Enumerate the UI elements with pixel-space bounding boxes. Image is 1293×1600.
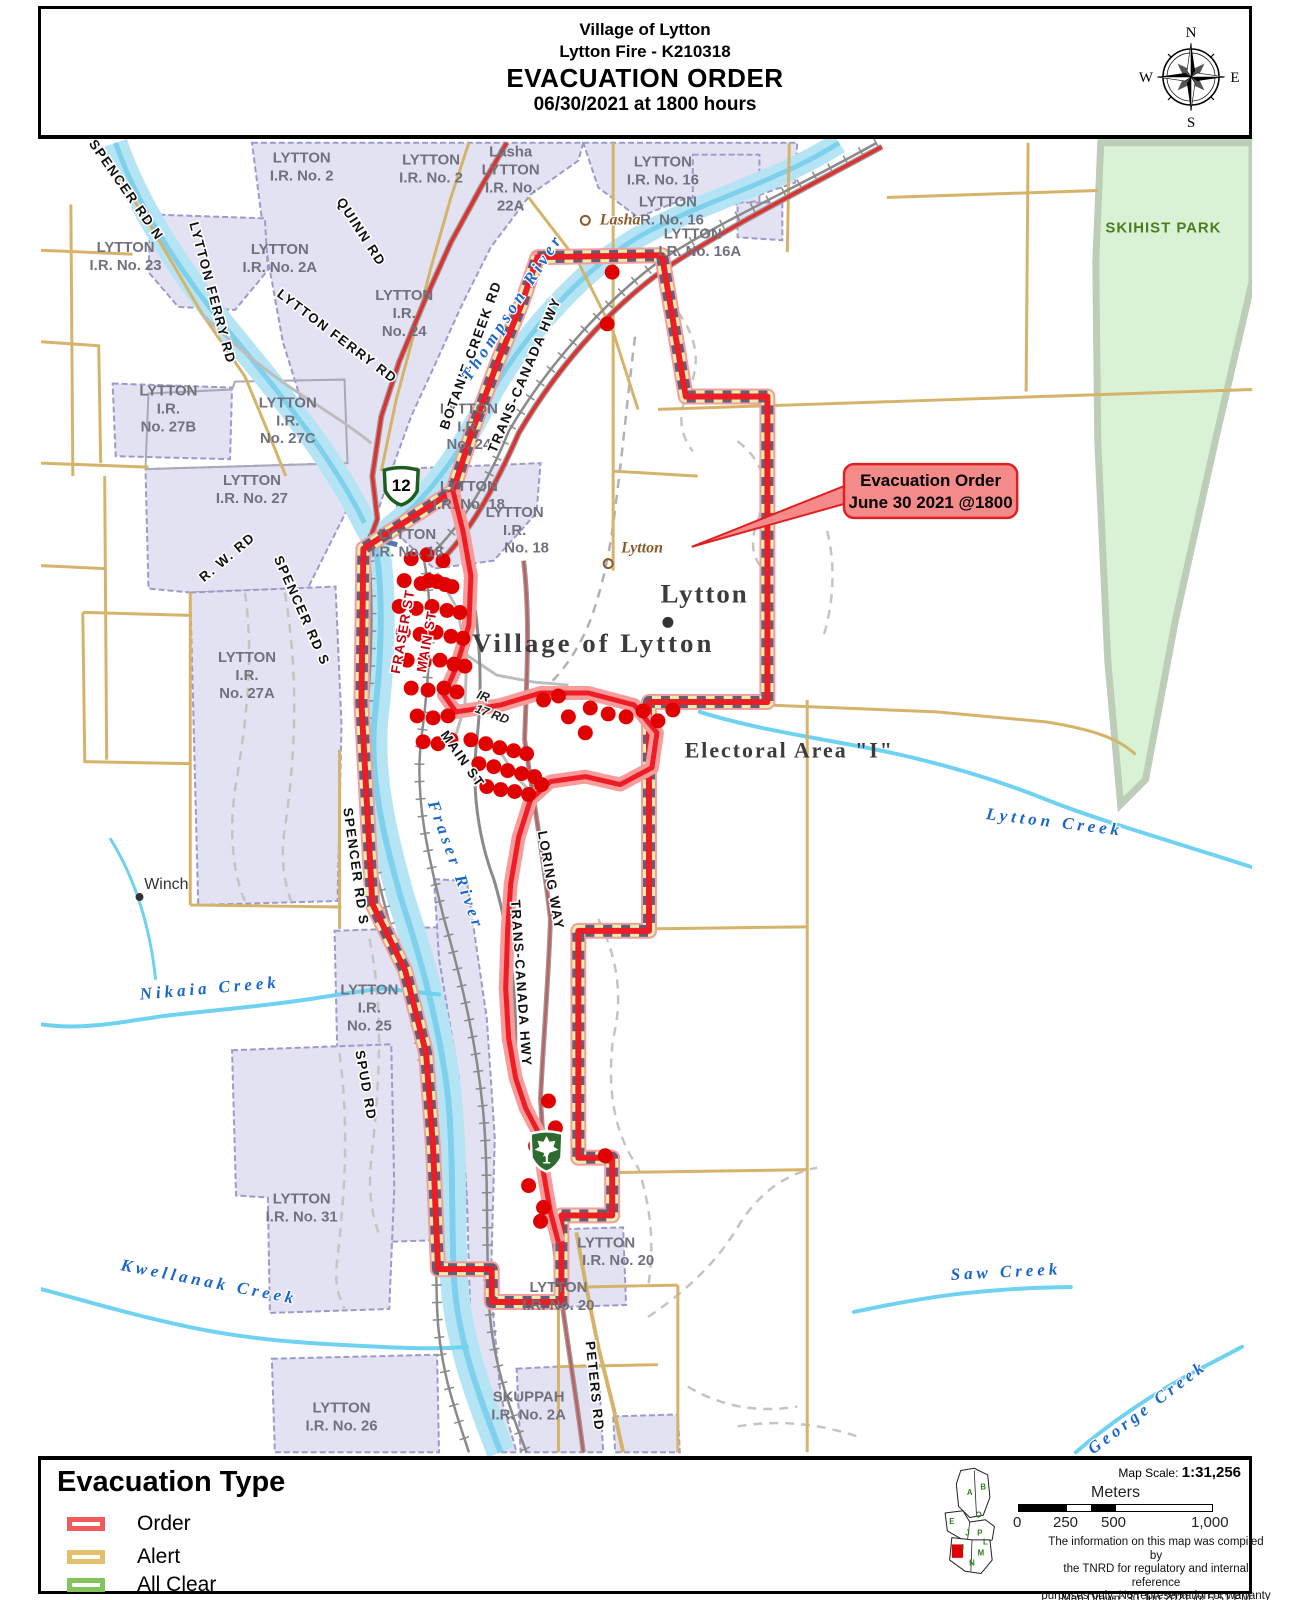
map-label-i-r-no-2: I.R. No. 2 bbox=[270, 168, 334, 185]
skihist-park-polygon bbox=[1096, 143, 1252, 805]
map-label-skihist-park: SKIHIST PARK bbox=[1105, 219, 1221, 236]
title-line-1: Village of Lytton bbox=[41, 19, 1249, 41]
map-label-lytton: LYTTON bbox=[223, 472, 281, 489]
map-label-i-r-no-16a: I.R. No. 16A bbox=[658, 243, 741, 260]
map-label-i-r-no-2a: I.R. No. 2A bbox=[243, 259, 318, 276]
compass-west-label: W bbox=[1139, 70, 1154, 86]
damage-dot bbox=[583, 700, 598, 715]
disclaimer: The information on this map was compiled… bbox=[1041, 1536, 1271, 1600]
map-label-i-r-no-20: I.R. No. 20 bbox=[522, 1297, 594, 1314]
compass-rose-icon: N E S W bbox=[1131, 17, 1251, 137]
map-label-lytton: LYTTON bbox=[259, 394, 317, 411]
all-clear-swatch-icon bbox=[67, 1578, 105, 1592]
district-letter-p: P bbox=[977, 1528, 982, 1537]
evacuation-map: 12 1 Evacuation Order June 30 2021 @1800… bbox=[41, 139, 1252, 1456]
damage-dot bbox=[561, 709, 576, 724]
map-label-i-r-no-26: I.R. No. 26 bbox=[305, 1417, 377, 1434]
damage-dot bbox=[536, 693, 551, 708]
map-label-lytton: LYTTON bbox=[482, 162, 540, 179]
damage-dot bbox=[441, 708, 456, 723]
map-scale-value: 1:31,256 bbox=[1182, 1464, 1241, 1481]
map-label-lytton: Lytton bbox=[661, 578, 749, 608]
title-line-3: EVACUATION ORDER bbox=[41, 63, 1249, 93]
damage-dot bbox=[600, 316, 615, 331]
map-label-george-creek: George Creek bbox=[1084, 1356, 1210, 1456]
scale-tick-1000: 1,000 bbox=[1191, 1514, 1229, 1531]
map-label-lytton: LYTTON bbox=[440, 478, 498, 495]
evacuation-order-callout: Evacuation Order June 30 2021 @1800 bbox=[692, 464, 1017, 547]
map-label-lytton: LYTTON bbox=[273, 1190, 331, 1207]
damage-dot bbox=[665, 702, 680, 717]
highway-12-shield: 12 bbox=[384, 468, 418, 505]
map-label-village-of-lytton: Village of Lytton bbox=[472, 628, 714, 658]
damage-dot bbox=[449, 685, 464, 700]
map-label-lytton: Lytton bbox=[620, 540, 663, 557]
damage-dot bbox=[422, 573, 437, 588]
map-label-lasha: Lasha bbox=[489, 144, 533, 161]
map-label-no-27c: No. 27C bbox=[260, 430, 316, 447]
order-swatch-icon bbox=[67, 1517, 105, 1531]
map-label-lytton: LYTTON bbox=[402, 152, 460, 169]
map-label-i-r-: I.R. bbox=[358, 999, 381, 1016]
damage-dot bbox=[521, 1178, 536, 1193]
map-label-lytton: LYTTON bbox=[375, 287, 433, 304]
damage-dot bbox=[455, 631, 470, 646]
damage-dot bbox=[492, 740, 507, 755]
damage-dot bbox=[493, 782, 508, 797]
map-label-no-24: No. 24 bbox=[382, 323, 427, 340]
map-label-i-r-: I.R. bbox=[393, 305, 416, 322]
damage-dot bbox=[426, 710, 441, 725]
damage-dot bbox=[438, 577, 453, 592]
damage-dot bbox=[519, 746, 534, 761]
map-label-loring-way: LORING WAY bbox=[535, 830, 567, 931]
damage-dot bbox=[433, 653, 448, 668]
compass-south-label: S bbox=[1187, 115, 1195, 131]
map-drawn-timestamp: Map Drawn: 30 Jun 2021 @ 5:51 PM bbox=[1041, 1593, 1271, 1600]
map-label-i-r-no-2a: I.R. No. 2A bbox=[491, 1406, 566, 1423]
map-label-i-r-no-: I.R. No. bbox=[485, 179, 536, 196]
damage-dot bbox=[601, 706, 616, 721]
scale-units: Meters bbox=[1018, 1484, 1213, 1502]
damage-dot bbox=[416, 734, 431, 749]
map-label-i-r-no-20: I.R. No. 20 bbox=[582, 1252, 654, 1269]
damage-dot bbox=[440, 603, 455, 618]
map-label-22a: 22A bbox=[497, 197, 525, 214]
damage-dot bbox=[404, 681, 419, 696]
damage-dot bbox=[551, 689, 566, 704]
legend-item-all-clear-label: All Clear bbox=[137, 1573, 216, 1597]
district-letter-o: O bbox=[976, 1511, 982, 1520]
damage-dot bbox=[397, 573, 412, 588]
damage-dot bbox=[506, 743, 521, 758]
district-letter-m: M bbox=[978, 1549, 985, 1558]
legend-item-order: Order bbox=[67, 1512, 191, 1536]
legend-item-all-clear: All Clear bbox=[67, 1573, 216, 1597]
damage-dot bbox=[514, 766, 529, 781]
map-label-lytton: LYTTON bbox=[378, 526, 436, 543]
map-label-lytton: LYTTON bbox=[273, 150, 331, 167]
scale-tick-0: 0 bbox=[1013, 1514, 1021, 1531]
legend-band: Evacuation Type Order Alert All Clear bbox=[38, 1456, 1252, 1594]
map-label-i-r-no-18: I.R. No. 18 bbox=[371, 544, 443, 561]
damage-dot bbox=[541, 1094, 556, 1109]
callout-line-2: June 30 2021 @1800 bbox=[849, 493, 1013, 512]
damage-dot bbox=[619, 709, 634, 724]
legend-item-alert-label: Alert bbox=[137, 1545, 180, 1569]
map-label-lytton: LYTTON bbox=[529, 1279, 587, 1296]
callout-line-1: Evacuation Order bbox=[860, 471, 1001, 490]
map-label-i-r-no-27: I.R. No. 27 bbox=[216, 490, 288, 507]
scale-tick-500: 500 bbox=[1101, 1514, 1126, 1531]
damage-dot bbox=[578, 725, 593, 740]
damage-dot bbox=[507, 784, 522, 799]
map-label-i-r-no-16: I.R. No. 16 bbox=[627, 172, 699, 189]
damage-dot bbox=[478, 736, 493, 751]
legend-title: Evacuation Type bbox=[57, 1466, 285, 1499]
map-label-lytton: LYTTON bbox=[486, 504, 544, 521]
map-label-no-24: No. 24 bbox=[447, 436, 492, 453]
map-sheet: Village of Lytton Lytton Fire - K210318 … bbox=[0, 0, 1293, 1600]
scale-bar bbox=[1018, 1504, 1213, 1512]
legend-item-alert: Alert bbox=[67, 1545, 180, 1569]
map-label-i-r-no-31: I.R. No. 31 bbox=[266, 1208, 338, 1225]
damage-dot bbox=[486, 759, 501, 774]
map-label-lasha: Lasha bbox=[599, 211, 641, 228]
map-label-lytton: LYTTON bbox=[664, 225, 722, 242]
compass-east-label: E bbox=[1230, 70, 1239, 86]
district-letter-n: N bbox=[969, 1559, 975, 1568]
map-label-electoral-area-i-: Electoral Area "I" bbox=[685, 738, 894, 763]
damage-dot bbox=[457, 659, 472, 674]
disclaimer-line-2: the TNRD for regulatory and internal ref… bbox=[1041, 1563, 1271, 1590]
map-label-winch: Winch bbox=[144, 876, 188, 893]
scale-tick-250: 250 bbox=[1053, 1514, 1078, 1531]
district-letter-a: A bbox=[967, 1488, 973, 1497]
district-letter-b: B bbox=[980, 1483, 986, 1492]
map-label-lytton: LYTTON bbox=[251, 241, 309, 258]
damage-dot bbox=[605, 265, 620, 280]
district-letter-i: I bbox=[962, 1543, 964, 1552]
title-block: Village of Lytton Lytton Fire - K210318 … bbox=[38, 6, 1252, 139]
damage-dot bbox=[452, 605, 467, 620]
map-label-lytton: LYTTON bbox=[139, 382, 197, 399]
title-line-2: Lytton Fire - K210318 bbox=[41, 41, 1249, 63]
shield-12-number: 12 bbox=[392, 476, 411, 495]
map-label-lytton-creek: Lytton Creek bbox=[984, 804, 1124, 840]
map-label-lytton: LYTTON bbox=[639, 193, 697, 210]
map-label-saw-creek: Saw Creek bbox=[950, 1259, 1061, 1284]
map-label-no-25: No. 25 bbox=[347, 1017, 392, 1034]
district-letter-e: E bbox=[949, 1517, 954, 1526]
highway-1-shield: 1 bbox=[531, 1131, 563, 1171]
district-letter-j: J bbox=[965, 1528, 969, 1537]
map-label-lytton: LYTTON bbox=[313, 1399, 371, 1416]
damage-dot bbox=[437, 681, 452, 696]
damage-dot bbox=[421, 683, 436, 698]
map-label-i-r-no-23: I.R. No. 23 bbox=[90, 257, 162, 274]
damage-dot bbox=[536, 1200, 551, 1215]
alert-swatch-icon bbox=[67, 1550, 105, 1564]
compass-north-label: N bbox=[1186, 25, 1197, 41]
map-label-no-27b: No. 27B bbox=[141, 418, 197, 435]
damage-dot bbox=[598, 1148, 613, 1163]
shield-1-number: 1 bbox=[542, 1151, 550, 1168]
map-label-lytton: LYTTON bbox=[577, 1234, 635, 1251]
map-label-lytton: LYTTON bbox=[340, 982, 398, 999]
disclaimer-line-1: The information on this map was compiled… bbox=[1041, 1536, 1271, 1563]
map-scale: Map Scale: 1:31,256 bbox=[1118, 1464, 1241, 1481]
damage-dot bbox=[650, 713, 665, 728]
map-label-i-r-: I.R. bbox=[157, 400, 180, 417]
map-label-no-27a: No. 27A bbox=[219, 685, 275, 702]
map-label-i-r-: I.R. bbox=[276, 412, 299, 429]
map-label-i-r-: I.R. bbox=[503, 522, 526, 539]
legend-item-order-label: Order bbox=[137, 1512, 191, 1536]
map-label-i-r-no-2: I.R. No. 2 bbox=[399, 170, 463, 187]
map-label-lytton: LYTTON bbox=[634, 154, 692, 171]
damage-dot bbox=[410, 708, 425, 723]
map-label-i-r-: I.R. bbox=[457, 418, 480, 435]
damage-dot bbox=[534, 777, 549, 792]
district-letter-l: L bbox=[983, 1537, 988, 1546]
damage-dot bbox=[463, 732, 478, 747]
map-label-lytton: LYTTON bbox=[97, 239, 155, 256]
locator-inset-map: ABEOJPLIMN bbox=[939, 1466, 1005, 1578]
map-label-i-r-: I.R. bbox=[235, 667, 258, 684]
damage-dot bbox=[521, 787, 536, 802]
title-line-4: 06/30/2021 at 1800 hours bbox=[41, 93, 1249, 117]
map-label-skuppah: SKUPPAH bbox=[493, 1389, 565, 1406]
map-label-nikaia-creek: Nikaia Creek bbox=[138, 972, 280, 1003]
damage-dot bbox=[533, 1214, 548, 1229]
map-label-lytton: LYTTON bbox=[218, 649, 276, 666]
damage-dot bbox=[500, 763, 515, 778]
damage-dot bbox=[636, 703, 651, 718]
map-scale-label: Map Scale: bbox=[1118, 1466, 1178, 1480]
map-label-no-18: No. 18 bbox=[504, 540, 549, 557]
